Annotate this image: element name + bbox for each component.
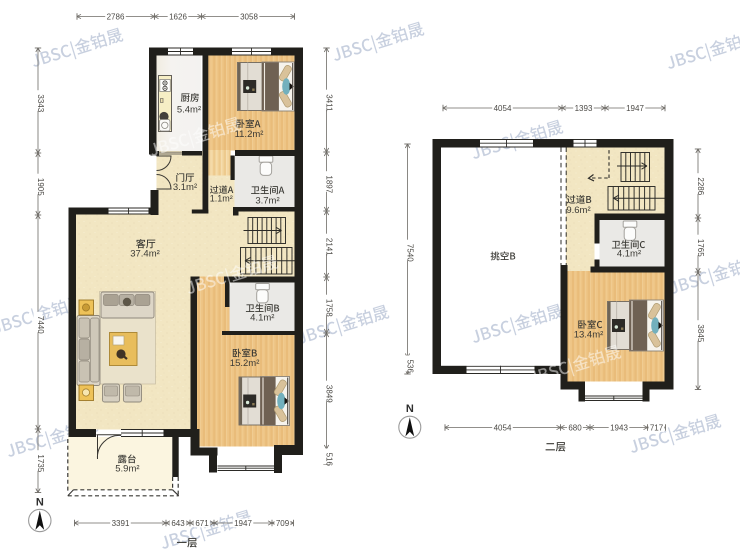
svg-text:516: 516 <box>325 453 334 467</box>
svg-text:1735: 1735 <box>36 454 45 472</box>
svg-text:2286: 2286 <box>696 177 705 195</box>
svg-text:2141: 2141 <box>325 238 334 256</box>
svg-text:3343: 3343 <box>36 94 45 112</box>
svg-text:1947: 1947 <box>234 519 252 528</box>
svg-text:1758: 1758 <box>325 299 334 317</box>
svg-text:5.4m²: 5.4m² <box>177 105 201 116</box>
svg-text:3411: 3411 <box>325 94 334 112</box>
svg-text:N: N <box>36 496 44 508</box>
svg-text:N: N <box>406 403 414 415</box>
svg-text:3845: 3845 <box>696 324 705 342</box>
svg-text:1943: 1943 <box>610 423 628 432</box>
svg-text:11.2m²: 11.2m² <box>235 129 264 140</box>
svg-text:4.1m²: 4.1m² <box>250 313 274 324</box>
svg-text:3391: 3391 <box>112 519 130 528</box>
svg-text:1765: 1765 <box>696 239 705 257</box>
svg-text:536: 536 <box>406 360 415 374</box>
svg-text:7540: 7540 <box>406 244 415 262</box>
svg-text:1947: 1947 <box>626 104 644 113</box>
svg-text:9.6m²: 9.6m² <box>566 205 590 216</box>
svg-text:717: 717 <box>650 423 664 432</box>
svg-text:3.7m²: 3.7m² <box>255 196 279 207</box>
svg-text:643: 643 <box>171 519 185 528</box>
svg-text:1.1m²: 1.1m² <box>210 194 233 204</box>
svg-text:7440: 7440 <box>36 316 45 334</box>
svg-text:4054: 4054 <box>494 104 512 113</box>
svg-text:671: 671 <box>195 519 209 528</box>
svg-text:5.9m²: 5.9m² <box>115 464 139 475</box>
svg-text:3058: 3058 <box>240 12 258 21</box>
svg-text:1626: 1626 <box>169 12 187 21</box>
svg-text:15.2m²: 15.2m² <box>230 358 260 369</box>
svg-text:3849: 3849 <box>325 385 334 403</box>
svg-text:1393: 1393 <box>575 104 593 113</box>
svg-text:680: 680 <box>568 423 582 432</box>
svg-text:709: 709 <box>276 519 290 528</box>
svg-text:2786: 2786 <box>107 12 125 21</box>
svg-text:37.4m²: 37.4m² <box>130 249 160 260</box>
svg-text:13.4m²: 13.4m² <box>574 330 604 341</box>
svg-text:1905: 1905 <box>36 178 45 196</box>
svg-text:3.1m²: 3.1m² <box>173 182 197 193</box>
svg-text:1897: 1897 <box>325 175 334 193</box>
svg-text:4054: 4054 <box>494 423 512 432</box>
svg-text:4.1m²: 4.1m² <box>617 249 641 260</box>
